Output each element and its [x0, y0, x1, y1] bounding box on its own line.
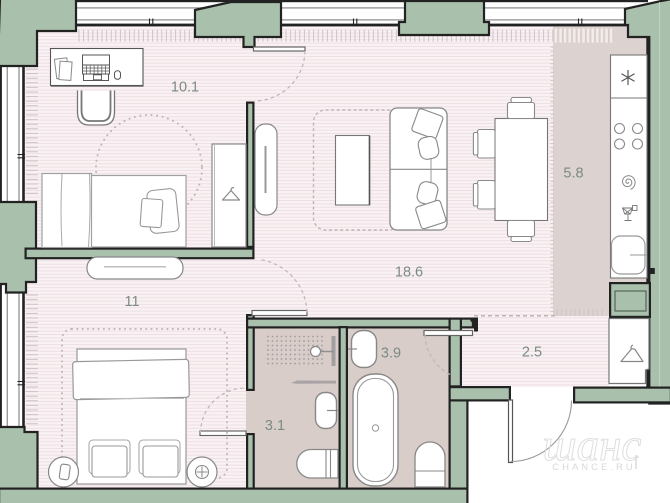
svg-text:3.9: 3.9: [381, 346, 401, 362]
svg-text:10.1: 10.1: [171, 80, 199, 96]
svg-text:CHANCE.RU: CHANCE.RU: [552, 462, 635, 473]
svg-text:11: 11: [124, 294, 139, 310]
svg-text:3.1: 3.1: [265, 418, 285, 434]
svg-text:5.8: 5.8: [563, 166, 583, 182]
svg-text:2.5: 2.5: [522, 345, 542, 361]
svg-text:18.6: 18.6: [395, 265, 423, 281]
